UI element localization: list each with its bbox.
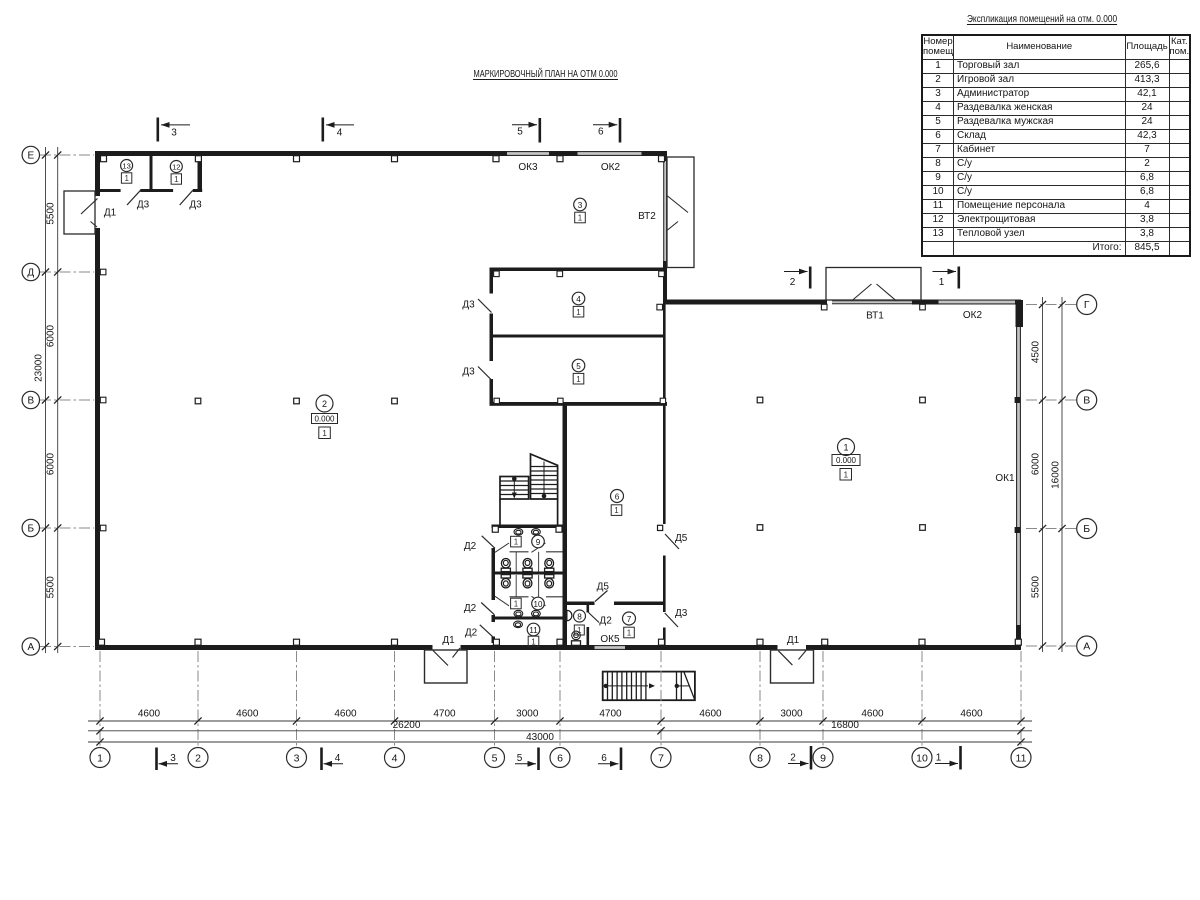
svg-text:МАРКИРОВОЧНЫЙ ПЛАН НА ОТМ 0.00: МАРКИРОВОЧНЫЙ ПЛАН НА ОТМ 0.000 [474, 67, 618, 80]
svg-text:5500: 5500 [1031, 575, 1042, 598]
svg-text:4700: 4700 [433, 709, 456, 720]
svg-text:7: 7 [627, 615, 632, 624]
svg-text:1: 1 [576, 308, 581, 317]
svg-text:1: 1 [614, 506, 619, 515]
svg-text:4: 4 [337, 128, 343, 139]
svg-text:4700: 4700 [599, 709, 622, 720]
svg-text:4600: 4600 [960, 709, 983, 720]
svg-text:8: 8 [757, 752, 763, 764]
svg-text:В: В [1083, 395, 1090, 407]
svg-text:8: 8 [577, 612, 582, 621]
svg-text:Д3: Д3 [462, 367, 475, 378]
svg-text:0.000: 0.000 [314, 415, 335, 424]
svg-text:А: А [1083, 641, 1090, 653]
svg-text:4600: 4600 [236, 709, 259, 720]
svg-text:11: 11 [1016, 752, 1027, 764]
svg-text:16000: 16000 [1051, 461, 1062, 489]
svg-text:9: 9 [820, 752, 826, 764]
svg-text:Д2: Д2 [464, 603, 477, 614]
svg-text:1: 1 [97, 752, 103, 764]
svg-text:1: 1 [514, 600, 519, 609]
svg-text:2: 2 [790, 277, 796, 288]
svg-text:В: В [27, 396, 34, 407]
svg-text:Д3: Д3 [675, 608, 688, 619]
svg-text:Д3: Д3 [137, 200, 150, 211]
svg-text:1: 1 [514, 538, 519, 547]
svg-text:Д3: Д3 [189, 200, 202, 211]
svg-text:5: 5 [492, 752, 498, 764]
svg-text:2: 2 [195, 752, 201, 764]
svg-text:4500: 4500 [1031, 340, 1042, 363]
svg-text:3: 3 [578, 201, 583, 210]
svg-text:ОК5: ОК5 [600, 634, 620, 645]
svg-text:16800: 16800 [831, 720, 859, 731]
svg-text:4: 4 [392, 752, 398, 764]
svg-text:1: 1 [174, 175, 179, 184]
svg-text:5500: 5500 [46, 576, 57, 599]
svg-text:ВТ2: ВТ2 [638, 211, 656, 222]
svg-text:2: 2 [790, 753, 796, 764]
svg-text:Д3: Д3 [462, 300, 475, 311]
svg-text:ОК2: ОК2 [601, 162, 621, 173]
svg-text:1: 1 [843, 443, 848, 453]
svg-text:Б: Б [28, 524, 35, 535]
svg-text:43000: 43000 [526, 732, 554, 743]
svg-text:12: 12 [172, 163, 180, 172]
svg-text:4600: 4600 [861, 709, 884, 720]
svg-text:Д5: Д5 [597, 582, 610, 593]
svg-text:10: 10 [916, 752, 928, 764]
svg-text:2: 2 [322, 399, 327, 409]
svg-text:1: 1 [322, 428, 327, 438]
svg-text:3000: 3000 [780, 709, 803, 720]
svg-text:Д2: Д2 [599, 616, 612, 627]
svg-text:4: 4 [335, 753, 341, 764]
svg-text:1: 1 [843, 470, 848, 480]
svg-text:1: 1 [576, 375, 581, 384]
svg-text:11: 11 [529, 626, 538, 635]
svg-text:5: 5 [517, 753, 523, 764]
svg-text:Г: Г [1084, 299, 1090, 311]
svg-text:Д1: Д1 [442, 635, 455, 646]
svg-text:3: 3 [294, 752, 300, 764]
svg-text:6: 6 [598, 127, 604, 138]
svg-text:0.000: 0.000 [836, 456, 857, 465]
svg-text:6: 6 [557, 752, 563, 764]
svg-text:26200: 26200 [393, 720, 421, 731]
svg-text:4600: 4600 [334, 709, 357, 720]
svg-text:Д: Д [27, 268, 34, 279]
svg-text:5: 5 [517, 127, 523, 138]
svg-text:Д5: Д5 [675, 533, 688, 544]
svg-text:1: 1 [124, 174, 129, 183]
svg-text:1: 1 [936, 753, 942, 764]
svg-text:6000: 6000 [46, 324, 57, 347]
svg-text:Е: Е [27, 151, 34, 162]
svg-text:Д1: Д1 [787, 635, 800, 646]
svg-text:7: 7 [658, 752, 664, 764]
svg-text:Д1: Д1 [104, 208, 117, 219]
svg-text:ОК2: ОК2 [963, 310, 983, 321]
svg-text:ВТ1: ВТ1 [866, 311, 884, 322]
svg-text:1: 1 [531, 638, 536, 647]
svg-text:4: 4 [576, 295, 581, 304]
svg-text:1: 1 [578, 214, 583, 223]
svg-text:6000: 6000 [1031, 452, 1042, 475]
svg-text:10: 10 [534, 600, 543, 609]
svg-text:1: 1 [627, 629, 632, 638]
svg-text:Д2: Д2 [464, 541, 477, 552]
svg-text:3000: 3000 [516, 709, 539, 720]
svg-text:1: 1 [939, 277, 945, 288]
svg-text:9: 9 [536, 538, 541, 547]
svg-text:Б: Б [1083, 523, 1090, 535]
svg-text:6000: 6000 [46, 452, 57, 475]
svg-text:4600: 4600 [699, 709, 722, 720]
svg-text:3: 3 [170, 753, 176, 764]
svg-text:5500: 5500 [46, 202, 57, 225]
svg-text:3: 3 [171, 128, 177, 139]
svg-text:23000: 23000 [33, 354, 44, 382]
svg-text:4600: 4600 [138, 709, 161, 720]
svg-text:ОК3: ОК3 [518, 162, 538, 173]
svg-text:Д2: Д2 [465, 628, 478, 639]
svg-text:6: 6 [601, 753, 607, 764]
svg-text:А: А [27, 642, 34, 653]
svg-text:ОК1: ОК1 [995, 473, 1015, 484]
svg-text:5: 5 [576, 362, 581, 371]
svg-text:13: 13 [122, 162, 130, 171]
svg-text:1: 1 [577, 626, 582, 635]
svg-text:6: 6 [615, 492, 620, 501]
